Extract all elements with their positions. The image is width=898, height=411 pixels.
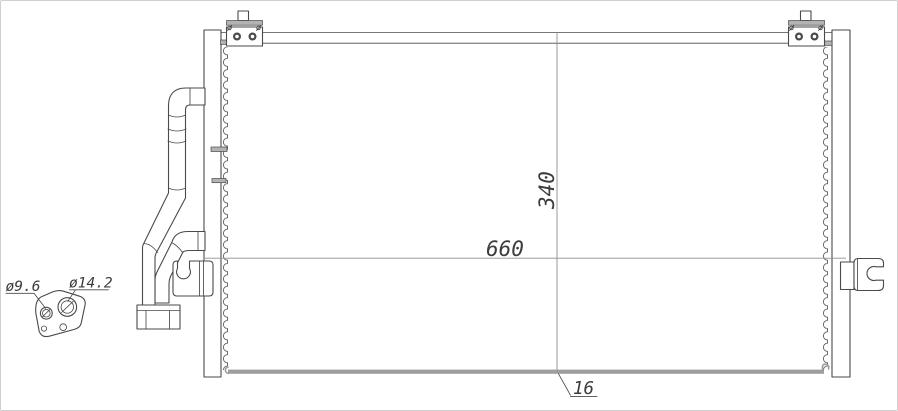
- mounting-bracket-left: [227, 11, 263, 46]
- dimension-label-width: 660: [486, 237, 524, 261]
- mounting-bracket-right: [789, 11, 825, 46]
- condenser-technical-drawing: 340 660 16 ø9.6 ø14.2: [0, 0, 898, 411]
- clip-tab-top-right: [825, 41, 833, 45]
- left-side-plate: [204, 30, 221, 377]
- bracket-right-hole-2: [812, 34, 818, 40]
- bracket-right-hole-1: [796, 34, 802, 40]
- clamp-right-neck: [841, 262, 855, 290]
- top-header-bar: [221, 33, 832, 44]
- bracket-left-strip: [227, 21, 263, 26]
- right-side-plate: [832, 30, 850, 377]
- bracket-left-hole-1: [234, 34, 240, 40]
- dimension-label-depth: 16: [573, 379, 594, 399]
- dimension-label-port-large: ø14.2: [69, 276, 113, 292]
- bottom-bar: [225, 364, 828, 374]
- port-large: [58, 298, 77, 317]
- bracket-left-tab: [238, 11, 249, 21]
- pipe-assembly: [137, 88, 213, 329]
- pipe-clamp-right: [841, 259, 884, 291]
- bracket-right-strip: [789, 21, 825, 26]
- drawing-page: 340 660 16 ø9.6 ø14.2: [0, 0, 898, 411]
- bracket-left-hole-2: [250, 34, 256, 40]
- dimensions: 340 660 16 ø9.6 ø14.2: [6, 33, 847, 400]
- fin-edge-right: [823, 47, 833, 370]
- condenser-core: [204, 30, 850, 377]
- port-small: [40, 307, 52, 319]
- fin-edge-left: [219, 47, 229, 370]
- clip-tab-left-upper: [211, 147, 227, 152]
- clip-tab-left-lower: [212, 179, 226, 183]
- fitting-plate-detail: [36, 291, 86, 337]
- dimension-label-port-small: ø9.6: [6, 279, 41, 295]
- pipe-flange-block: [137, 305, 180, 329]
- pipe-clamp-left: [173, 261, 213, 296]
- dimension-label-height: 340: [535, 171, 559, 210]
- bracket-right-tab: [801, 11, 812, 21]
